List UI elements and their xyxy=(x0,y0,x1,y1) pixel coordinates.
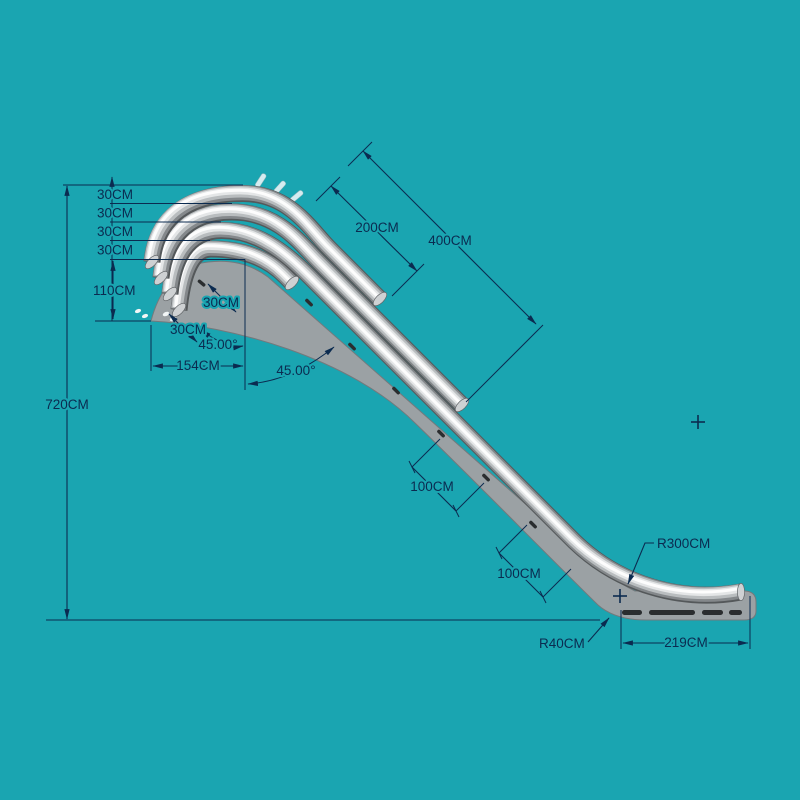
dim-label-r40cm: R40CM xyxy=(539,636,585,651)
dim-label-100cm-upper: 100CM xyxy=(410,479,454,494)
dim-label-angle-slope: 45.00° xyxy=(276,363,315,378)
dim-label-720cm: 720CM xyxy=(45,397,89,412)
dim-label-154cm: 154CM xyxy=(176,358,220,373)
dim-label-30cm-4: 30CM xyxy=(97,243,133,258)
dim-label-219cm: 219CM xyxy=(664,635,708,650)
dim-label-400cm: 400CM xyxy=(428,233,472,248)
dim-label-110cm: 110CM xyxy=(93,283,136,298)
drawing-stage: 30CM 30CM 30CM 30CM 110CM 720CM 154CM 45… xyxy=(0,0,800,800)
dim-label-100cm-lower: 100CM xyxy=(497,566,541,581)
dim-label-30cm-diag-2: 30CM xyxy=(170,322,206,337)
dim-label-30cm-1: 30CM xyxy=(97,187,133,202)
dim-label-200cm: 200CM xyxy=(355,220,399,235)
dim-label-r300cm: R300CM xyxy=(657,536,710,551)
technical-drawing-canvas: 30CM 30CM 30CM 30CM 110CM 720CM 154CM 45… xyxy=(0,0,800,800)
dim-label-angle-left: 45.00° xyxy=(198,337,237,352)
dim-label-30cm-diag-1: 30CM xyxy=(203,295,239,310)
dim-label-30cm-3: 30CM xyxy=(97,224,133,239)
dim-label-30cm-2: 30CM xyxy=(97,206,133,221)
